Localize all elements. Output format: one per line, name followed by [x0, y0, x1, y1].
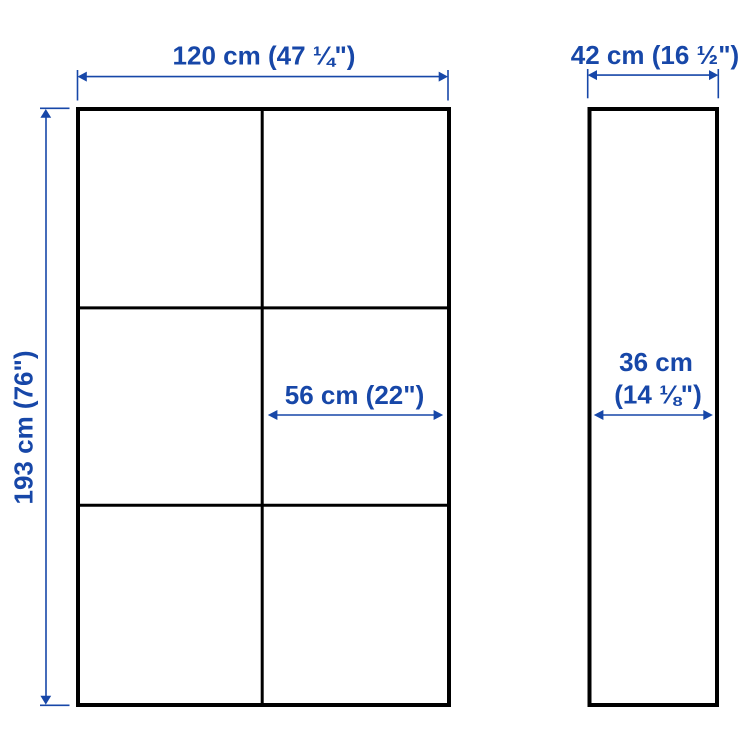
- svg-text:(14 ⅛"): (14 ⅛"): [614, 380, 701, 410]
- svg-text:120 cm (47 ¼"): 120 cm (47 ¼"): [173, 41, 356, 71]
- svg-text:36 cm: 36 cm: [619, 347, 693, 377]
- svg-text:42 cm (16 ½"): 42 cm (16 ½"): [571, 40, 739, 70]
- svg-text:56 cm (22"): 56 cm (22"): [285, 380, 425, 410]
- svg-text:193 cm (76"): 193 cm (76"): [9, 351, 39, 505]
